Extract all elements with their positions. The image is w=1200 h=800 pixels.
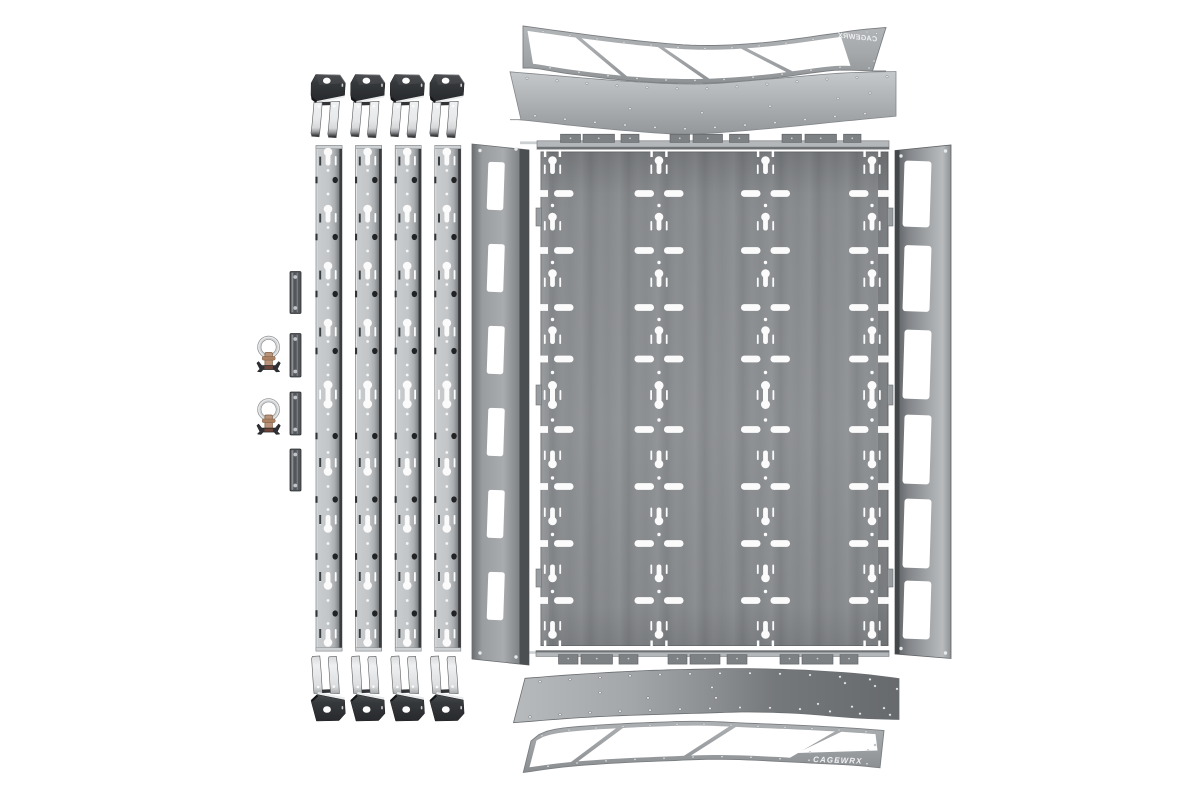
svg-text:CAGEWRX: CAGEWRX (813, 755, 863, 766)
